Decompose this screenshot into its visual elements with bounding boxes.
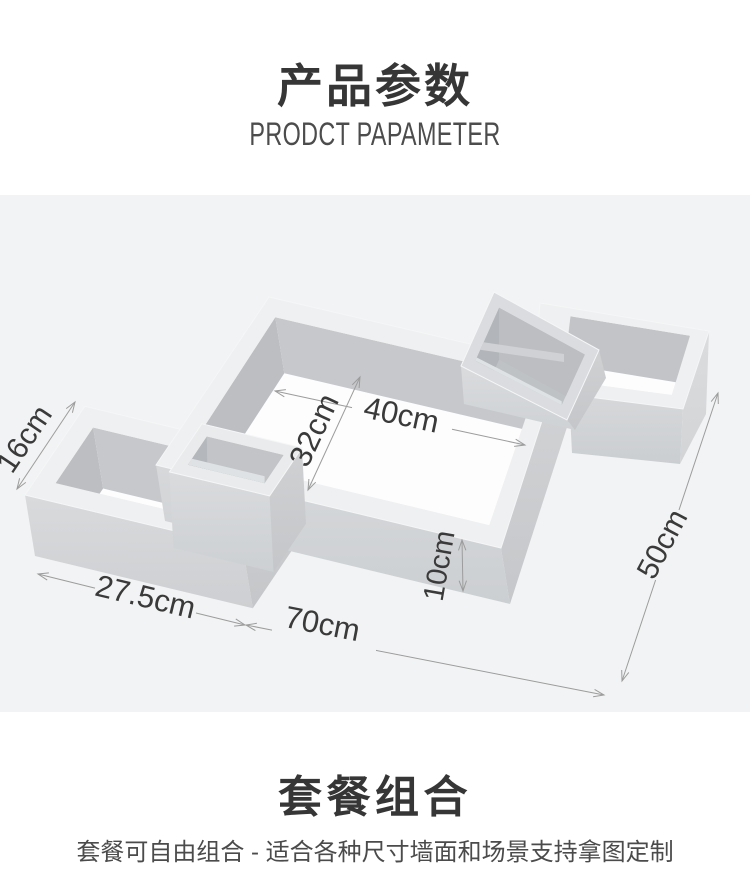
svg-text:70cm: 70cm <box>282 599 363 648</box>
svg-text:50cm: 50cm <box>631 504 695 584</box>
